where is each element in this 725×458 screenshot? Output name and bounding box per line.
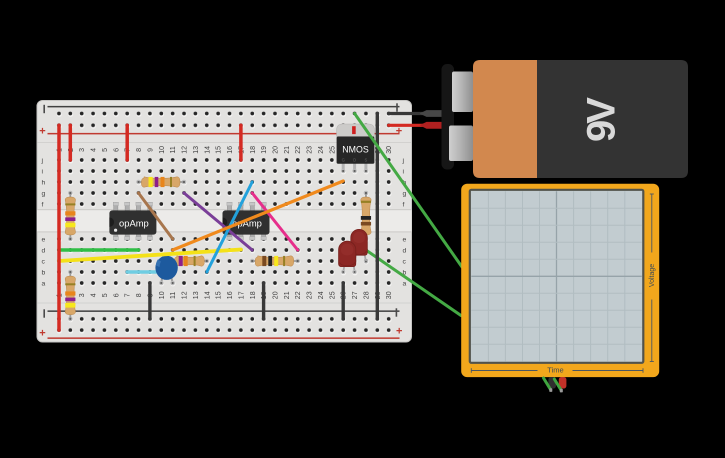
svg-text:d: d	[403, 247, 407, 254]
svg-text:18: 18	[250, 146, 257, 154]
svg-text:30: 30	[386, 291, 393, 299]
svg-text:a: a	[403, 280, 407, 287]
svg-text:5: 5	[102, 148, 109, 152]
svg-text:d: d	[42, 247, 46, 254]
svg-text:+: +	[39, 327, 45, 339]
svg-text:g: g	[403, 190, 407, 197]
svg-text:13: 13	[193, 291, 200, 299]
svg-text:5: 5	[102, 293, 109, 297]
svg-text:NMOS: NMOS	[342, 144, 369, 154]
svg-text:8: 8	[136, 148, 143, 152]
svg-text:S: S	[365, 158, 368, 163]
svg-text:8: 8	[136, 293, 143, 297]
svg-text:e: e	[403, 236, 407, 243]
svg-text:25: 25	[329, 291, 336, 299]
svg-text:19: 19	[261, 146, 268, 154]
svg-text:c: c	[403, 258, 407, 265]
svg-text:opAmp: opAmp	[119, 217, 149, 228]
svg-text:9V: 9V	[580, 97, 624, 142]
svg-text:25: 25	[329, 146, 336, 154]
svg-text:9: 9	[147, 148, 154, 152]
svg-text:23: 23	[307, 146, 314, 154]
svg-text:20: 20	[273, 146, 280, 154]
svg-text:g: g	[42, 190, 46, 197]
svg-text:Voltage: Voltage	[649, 264, 656, 287]
svg-text:c: c	[42, 258, 46, 265]
svg-text:+: +	[39, 125, 45, 137]
svg-text:27: 27	[352, 291, 359, 299]
svg-text:h: h	[42, 179, 46, 186]
svg-text:16: 16	[227, 146, 234, 154]
svg-text:30: 30	[386, 146, 393, 154]
svg-text:20: 20	[273, 291, 280, 299]
svg-text:10: 10	[159, 146, 166, 154]
svg-text:23: 23	[307, 291, 314, 299]
svg-text:f: f	[42, 201, 44, 208]
svg-text:18: 18	[250, 291, 257, 299]
svg-text:7: 7	[125, 293, 132, 297]
svg-text:24: 24	[318, 291, 325, 299]
svg-text:12: 12	[182, 291, 189, 299]
svg-text:17: 17	[238, 291, 245, 299]
svg-text:10: 10	[159, 291, 166, 299]
svg-text:15: 15	[216, 291, 223, 299]
svg-text:a: a	[42, 280, 46, 287]
svg-text:b: b	[42, 269, 46, 276]
svg-text:22: 22	[295, 146, 302, 154]
svg-text:e: e	[42, 236, 46, 243]
svg-text:16: 16	[227, 291, 234, 299]
svg-text:11: 11	[170, 292, 177, 299]
svg-text:D: D	[353, 158, 356, 163]
svg-text:+: +	[396, 125, 402, 137]
svg-text:12: 12	[182, 146, 189, 154]
svg-text:15: 15	[216, 146, 223, 154]
svg-text:13: 13	[193, 146, 200, 154]
svg-text:21: 21	[284, 146, 291, 154]
svg-text:21: 21	[284, 291, 291, 299]
svg-text:6: 6	[113, 293, 120, 297]
svg-text:3: 3	[79, 293, 86, 297]
svg-text:22: 22	[295, 291, 302, 299]
svg-text:G: G	[342, 158, 345, 163]
svg-text:Time: Time	[547, 366, 563, 375]
svg-text:4: 4	[91, 148, 98, 152]
svg-text:6: 6	[113, 148, 120, 152]
svg-text:28: 28	[363, 291, 370, 299]
svg-text:3: 3	[79, 148, 86, 152]
svg-text:11: 11	[170, 146, 177, 153]
svg-text:24: 24	[318, 146, 325, 154]
svg-text:f: f	[403, 201, 405, 208]
svg-text:14: 14	[204, 146, 211, 154]
svg-text:+: +	[396, 325, 402, 337]
svg-text:4: 4	[91, 293, 98, 297]
svg-text:14: 14	[204, 291, 211, 299]
